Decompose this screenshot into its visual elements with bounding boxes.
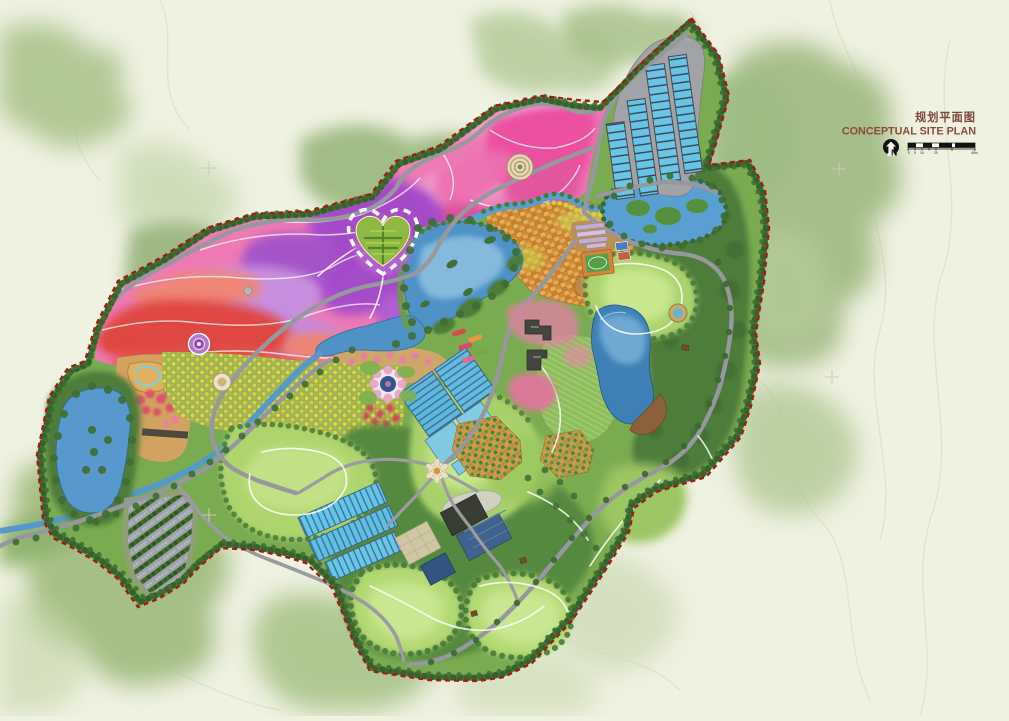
svg-text:规划平面图: 规划平面图	[915, 110, 976, 124]
svg-text:20: 20	[934, 151, 938, 155]
svg-text:0: 0	[908, 151, 910, 155]
svg-text:5: 5	[914, 151, 916, 155]
svg-text:CONCEPTUAL SITE PLAN: CONCEPTUAL SITE PLAN	[842, 126, 976, 138]
svg-text:10: 10	[920, 151, 924, 155]
svg-text:N: N	[891, 148, 897, 158]
svg-text:40m: 40m	[971, 151, 978, 155]
